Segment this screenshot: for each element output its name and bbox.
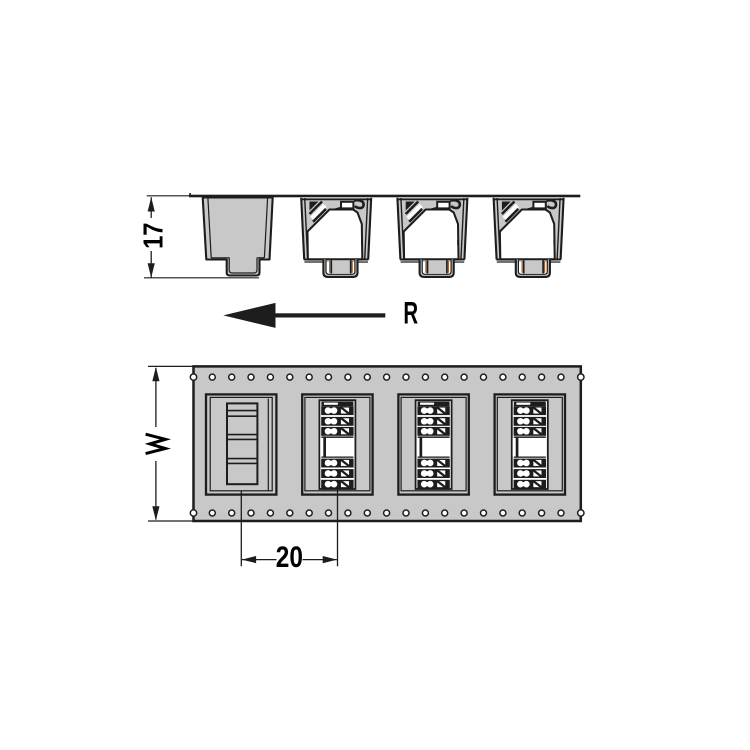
svg-text:R: R (403, 295, 418, 331)
svg-text:17: 17 (136, 222, 168, 248)
svg-text:20: 20 (276, 540, 303, 574)
